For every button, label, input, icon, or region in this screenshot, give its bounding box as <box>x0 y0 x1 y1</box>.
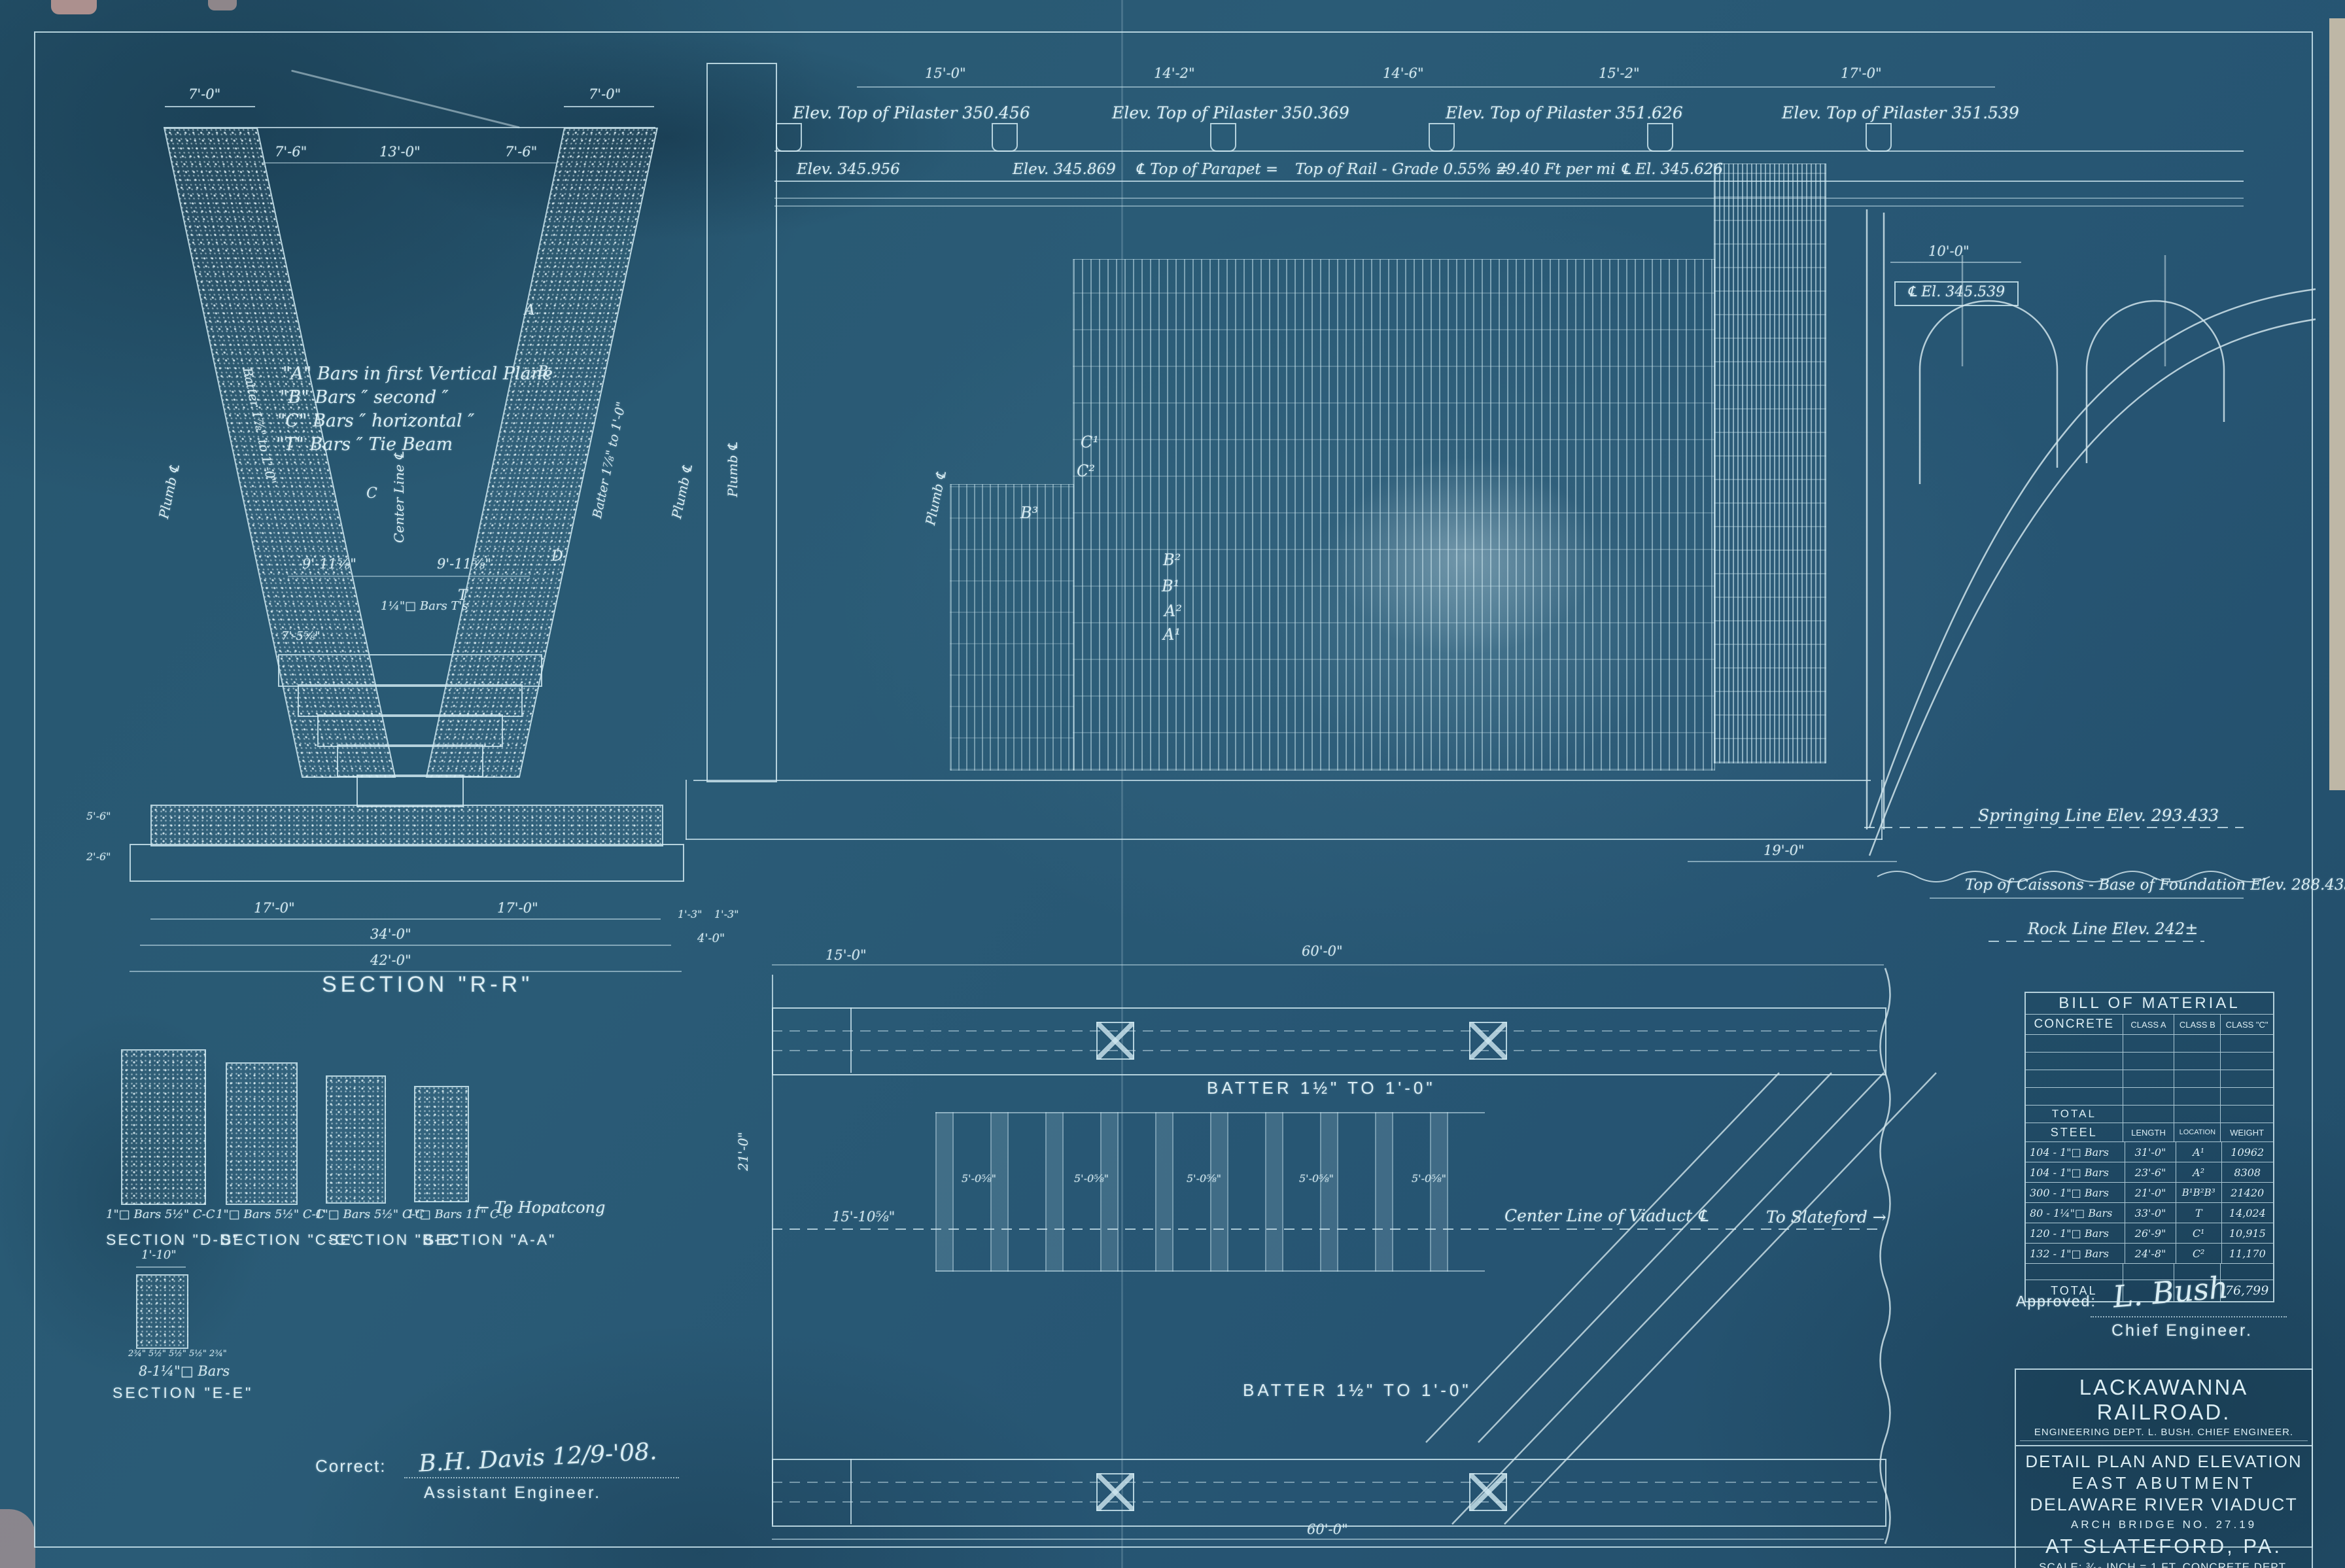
section-aa-rect <box>414 1086 469 1202</box>
bom-concrete-header: CONCRETE <box>2026 1015 2123 1034</box>
title-block-title-section: DETAIL PLAN AND ELEVATION EAST ABUTMENT … <box>2016 1446 2312 1568</box>
plan-dim-60-bottom: 60'-0" <box>1307 1522 1348 1537</box>
bom-location-header: LOCATION <box>2174 1123 2220 1141</box>
plan-batter-bottom-label: BATTER 1½" TO 1'-0" <box>1243 1380 1472 1401</box>
elev-pilaster-cap-4 <box>1429 123 1455 152</box>
approved-role: Chief Engineer. <box>2111 1321 2253 1340</box>
small-sections: 1"□ Bars 5½" C-C 1"□ Bars 5½" C-C 1"□ Ba… <box>0 1020 589 1446</box>
plan-dim-15: 15'-0" <box>825 947 867 963</box>
bom-class-c: CLASS "C" <box>2220 1015 2273 1034</box>
plan-wing-diagonals <box>1361 975 1949 1537</box>
elev-pilaster-cap-3 <box>1210 123 1236 152</box>
elev-dim-panel-1: 15'-0" <box>925 65 966 81</box>
bom-steel-row: 120 - 1"□ Bars 26'-9" C¹ 10,915 <box>2026 1223 2273 1243</box>
plan-bar-spacing-3: 5'-0⅝" <box>1187 1172 1221 1185</box>
elev-plumb-wall: Plumb ℄ <box>725 442 740 497</box>
elev-dim-13b: 1'-3" <box>714 908 739 920</box>
section-ee-bars: 8-1¼"□ Bars <box>139 1363 230 1379</box>
scale-line: SCALE: ³⁄₁₆ INCH = 1 FT. CONCRETE DEPT. <box>2019 1561 2309 1568</box>
elev-rail-label-2: Elev. 345.869 <box>1013 161 1116 178</box>
elev-pilaster-cap-2 <box>992 123 1018 152</box>
elev-callout-a2: A² <box>1164 602 1182 620</box>
elev-dim-panel-4: 15'-2" <box>1599 65 1640 81</box>
plan-bar-spacing-4: 5'-0⅝" <box>1299 1172 1334 1185</box>
section-ee-rect <box>136 1274 188 1349</box>
plan-dim-21: 21'-0" <box>735 1132 751 1171</box>
drawing-title-1: DETAIL PLAN AND ELEVATION <box>2019 1452 2309 1472</box>
correct-role: Assistant Engineer. <box>424 1484 601 1503</box>
section-dd-rect <box>121 1049 206 1205</box>
elevation-view: 15'-0" 14'-2" 14'-6" 15'-2" 17'-0" Plumb… <box>0 0 2345 949</box>
plan-dim-60-top: 60'-0" <box>1302 943 1343 959</box>
approved-label: Approved: <box>2016 1293 2096 1310</box>
elev-callout-b1: B¹ <box>1162 577 1179 595</box>
plan-anchor-box-1 <box>1096 1022 1134 1060</box>
elev-rail-label-5: 29.40 Ft per mi <box>1497 161 1615 178</box>
section-aa-bars: 1"□ Bars 11" C-C <box>407 1208 512 1221</box>
title-block: LACKAWANNA RAILROAD. ENGINEERING DEPT. L… <box>2015 1368 2313 1568</box>
elev-pilaster-label-3: Elev. Top of Pilaster 351.626 <box>1446 103 1683 122</box>
approved-signature-line <box>2091 1316 2287 1317</box>
section-ee-dim-top: 1'-10" <box>141 1248 177 1262</box>
elev-pilaster-cap-1 <box>776 123 802 152</box>
plan-bar-spacing-1: 5'-0⅝" <box>962 1172 996 1185</box>
elev-callout-b2: B² <box>1163 551 1181 569</box>
section-cc-bars: 1"□ Bars 5½" C-C <box>216 1208 325 1221</box>
drawing-title-2: EAST ABUTMENT <box>2019 1473 2309 1493</box>
section-aa-label: SECTION "A-A" <box>424 1231 556 1249</box>
elev-dim-panel-5: 17'-0" <box>1841 65 1882 81</box>
bom-concrete-total: TOTAL <box>2026 1106 2123 1123</box>
rock-label: Rock Line Elev. 242± <box>2028 920 2198 938</box>
plan-break-line <box>1872 968 1898 1544</box>
plan-bar-spacing-2: 5'-0⅝" <box>1074 1172 1109 1185</box>
bom-steel-row: 132 - 1"□ Bars 24'-8" C² 11,170 <box>2026 1243 2273 1263</box>
elev-pilaster-cap-5 <box>1647 123 1673 152</box>
bom-steel-row: 104 - 1"□ Bars 31'-0" A¹ 10962 <box>2026 1141 2273 1162</box>
bom-steel-row: 300 - 1"□ Bars 21'-0" B¹B²B³ 21420 <box>2026 1182 2273 1202</box>
location-line: AT SLATEFORD, PA. <box>2019 1535 2309 1558</box>
dept-line: ENGINEERING DEPT. L. BUSH. CHIEF ENGINEE… <box>2020 1427 2308 1441</box>
section-ee-dims-bottom: 2¾" 5½" 5½" 5½" 2¾" <box>128 1349 227 1359</box>
elev-rebar-grid-dense <box>1714 164 1826 763</box>
plan-anchor-box-4 <box>1469 1473 1507 1511</box>
section-dd-bars: 1"□ Bars 5½" C-C <box>106 1208 215 1221</box>
elev-plumb-grid: Plumb ℄ <box>922 470 949 527</box>
section-bb-rect <box>326 1075 386 1204</box>
plan-dim-1510: 15'-10⅝" <box>832 1209 895 1225</box>
elev-callout-c1: C¹ <box>1081 433 1099 451</box>
bom-title: BILL OF MATERIAL <box>2026 993 2273 1014</box>
blueprint-sheet: 7'-0" 7'-0" 7'-6" 13'-0" 7'-6" "A" Bars … <box>0 0 2345 1568</box>
plan-bottom-band <box>772 1459 1886 1527</box>
elev-rail-label-1: Elev. 345.956 <box>797 161 900 178</box>
elev-rail-label-6: ℄ El. 345.626 <box>1621 161 1723 178</box>
elev-callout-c2: C² <box>1077 462 1095 480</box>
bom-weight-header: WEIGHT <box>2220 1123 2273 1141</box>
drawing-title-3: DELAWARE RIVER VIADUCT <box>2019 1495 2309 1515</box>
section-cc-rect <box>226 1062 298 1205</box>
elev-rebar-grid-left <box>950 484 1074 771</box>
elev-pilaster-label-1: Elev. Top of Pilaster 350.456 <box>793 103 1030 122</box>
elev-rail-label-4: Top of Rail - Grade 0.55% = <box>1295 161 1508 178</box>
springing-label: Springing Line Elev. 293.433 <box>1978 806 2219 825</box>
section-dd-label: SECTION "D-D" <box>106 1231 240 1249</box>
elev-dim-panel-2: 14'-2" <box>1154 65 1195 81</box>
elev-dim-13a: 1'-3" <box>678 908 703 920</box>
elev-dim-panel-3: 14'-6" <box>1383 65 1424 81</box>
plan-anchor-box-3 <box>1096 1473 1134 1511</box>
section-ee-label: SECTION "E-E" <box>113 1384 253 1402</box>
springing-line <box>1864 827 2244 828</box>
correct-label: Correct: <box>315 1456 386 1476</box>
bom-length-header: LENGTH <box>2123 1123 2174 1141</box>
elev-dim-19: 19'-0" <box>1763 843 1805 858</box>
caissons-label: Top of Caissons - Base of Foundation Ele… <box>1965 877 2345 894</box>
correct-signature-line <box>404 1477 679 1478</box>
elev-pilaster-label-2: Elev. Top of Pilaster 350.369 <box>1112 103 1349 122</box>
elev-rebar-grid-main <box>1073 259 1715 771</box>
elev-callout-b3: B³ <box>1020 504 1038 522</box>
company-name: LACKAWANNA RAILROAD. <box>2020 1375 2308 1425</box>
bom-steel-header: STEEL <box>2026 1123 2123 1141</box>
elev-callout-a1: A¹ <box>1163 625 1181 644</box>
bom-class-b: CLASS B <box>2174 1015 2220 1034</box>
bridge-number: ARCH BRIDGE NO. 27.19 <box>2019 1518 2309 1531</box>
bom-steel-row: 104 - 1"□ Bars 23'-6" A² 8308 <box>2026 1162 2273 1182</box>
bom-class-a: CLASS A <box>2123 1015 2174 1034</box>
bom-steel-row: 80 - 1¼"□ Bars 33'-0" T 14,024 <box>2026 1202 2273 1223</box>
bill-of-material: BILL OF MATERIAL CONCRETE CLASS A CLASS … <box>2024 992 2274 1302</box>
elev-rail-label-3: ℄ Top of Parapet = <box>1136 161 1278 178</box>
title-block-company-section: LACKAWANNA RAILROAD. ENGINEERING DEPT. L… <box>2016 1370 2312 1446</box>
elev-left-wall <box>706 63 777 782</box>
